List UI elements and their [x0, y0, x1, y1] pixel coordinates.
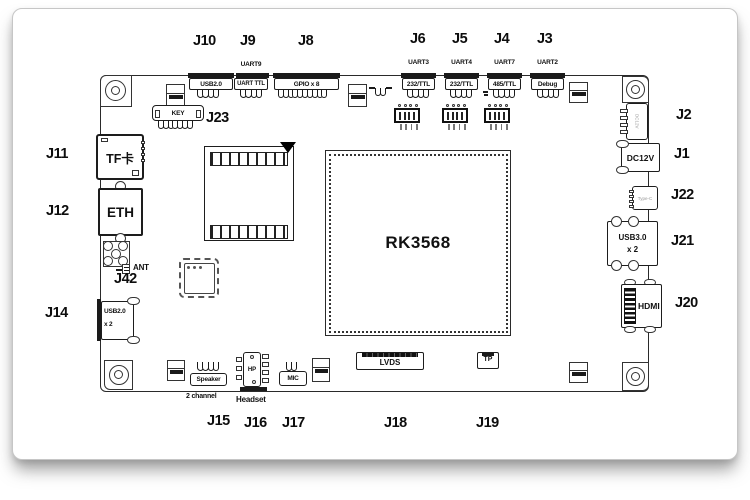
- ref-label-j42: J42: [114, 271, 137, 287]
- ref-label-j9: J9: [240, 33, 255, 49]
- headset-pad: [236, 357, 242, 362]
- edge-pad: [188, 73, 234, 78]
- connector-key-label: KEY: [172, 110, 185, 117]
- connector-debug-label: Debug: [538, 81, 557, 88]
- connector-j2-tiny-label: DC12V: [635, 114, 640, 129]
- pin1-triangle-marker: [280, 142, 296, 153]
- connector-tp: TP: [477, 352, 499, 369]
- connector-uart7-label: 485/TTL: [493, 81, 516, 88]
- edge-pad: [444, 73, 479, 78]
- fuse-component: [166, 84, 185, 107]
- ref-label-j8: J8: [298, 33, 313, 49]
- uart3-pins: [407, 90, 428, 98]
- fuse-component: [167, 360, 185, 381]
- connector-uart4-label: 232/TTL: [450, 81, 473, 88]
- fuse-component: [348, 84, 367, 107]
- usb2x2-pad-bottom: [127, 336, 140, 344]
- connector-uart4-header: 232/TTL: [445, 78, 478, 90]
- ref-label-j23: J23: [206, 110, 229, 126]
- headset-pad: [262, 354, 269, 359]
- connector-gpio-label: GPIO x 8: [294, 81, 320, 88]
- connector-tf-card: TF卡: [96, 134, 144, 180]
- uart7-pins: [493, 90, 514, 98]
- ref-label-j1: J1: [674, 146, 689, 162]
- mini-connector-tail: [386, 87, 392, 89]
- connector-mic: MIC: [279, 371, 307, 386]
- edge-pad: [401, 73, 436, 78]
- connector-typec-tiny-label: Type-C: [638, 196, 653, 201]
- ref-label-j6: J6: [410, 31, 425, 47]
- ref-label-j11: J11: [46, 146, 68, 162]
- dc12v-pad-top: [616, 140, 629, 148]
- port-label-uart7: UART7: [488, 59, 521, 66]
- memory-socket-pins-top: [210, 152, 288, 166]
- usb3-pad: [611, 260, 622, 271]
- ref-label-j21: J21: [671, 233, 694, 249]
- connector-uart3-header: 232/TTL: [402, 78, 435, 90]
- headset-sub-label: Headset: [236, 395, 266, 404]
- connector-headset-label: HP: [248, 367, 256, 373]
- connector-eth: ETH: [98, 188, 143, 236]
- ref-label-j5: J5: [452, 31, 467, 47]
- speaker-sub-label: 2 channel: [186, 393, 217, 400]
- qfn-chip: [179, 258, 219, 298]
- connector-uart3-label: 232/TTL: [407, 81, 430, 88]
- ref-label-j16: J16: [244, 415, 267, 431]
- ref-label-j20: J20: [675, 295, 698, 311]
- connector-gpio-header: GPIO x 8: [274, 78, 339, 90]
- dip-switch-uart7: [484, 104, 512, 130]
- ref-label-j19: J19: [476, 415, 499, 431]
- connector-usb2-label: USB2.0: [200, 81, 222, 88]
- fuse-component: [569, 362, 588, 383]
- port-label-uart2: UART2: [531, 59, 564, 66]
- gpio-pins: [278, 90, 326, 98]
- ref-label-j2: J2: [676, 107, 691, 123]
- ref-label-j15: J15: [207, 413, 230, 429]
- connector-key: KEY: [152, 105, 204, 121]
- uart4-pins: [450, 90, 471, 98]
- hdmi-pad: [624, 326, 636, 333]
- ref-label-j10: J10: [193, 33, 216, 49]
- mounting-hole-bottom-right: [622, 362, 649, 391]
- ref-label-j12: J12: [46, 203, 69, 219]
- mounting-hole-top-left: [100, 75, 132, 107]
- connector-speaker: Speaker: [190, 373, 227, 386]
- mounting-hole-top-right: [622, 76, 649, 103]
- mini-connector-pins: [375, 88, 385, 96]
- edge-pad: [236, 73, 269, 78]
- connector-lvds-label: LVDS: [380, 358, 401, 367]
- connector-mic-label: MIC: [287, 375, 298, 382]
- dip-switch-uart4: [442, 104, 470, 130]
- connector-uart-ttl-label: UART TTL: [237, 81, 265, 87]
- headset-pad: [262, 362, 269, 367]
- headset-edge-bar: [240, 387, 267, 391]
- usb3-pad: [628, 260, 639, 271]
- connector-usb2-header: USB2.0: [189, 78, 233, 90]
- connector-typec: Type-C: [632, 186, 658, 210]
- headset-pad: [236, 375, 242, 380]
- connector-debug-header: Debug: [531, 78, 564, 90]
- rs485-mark: [484, 94, 488, 96]
- ref-label-j4: J4: [494, 31, 509, 47]
- connector-j2: DC12V: [626, 103, 648, 140]
- ref-label-j22: J22: [671, 187, 694, 203]
- mounting-hole-bottom-left: [104, 360, 133, 390]
- connector-usb3-sub: x 2: [627, 245, 638, 254]
- usb3-pad: [628, 216, 639, 227]
- port-label-uart3: UART3: [402, 59, 435, 66]
- ref-label-j18: J18: [384, 415, 407, 431]
- connector-tf-card-label: TF卡: [106, 148, 134, 167]
- speaker-pins: [197, 362, 218, 371]
- fuse-component: [569, 82, 588, 103]
- ref-label-j17: J17: [282, 415, 305, 431]
- connector-speaker-label: Speaker: [197, 376, 221, 383]
- connector-uart7-header: 485/TTL: [488, 78, 521, 90]
- soc-chip: RK3568: [325, 150, 511, 336]
- connector-headset: HP: [243, 352, 261, 387]
- connector-hdmi: HDMI: [621, 284, 662, 328]
- debug-pins: [537, 90, 558, 98]
- connector-usb3-label: USB3.0: [618, 233, 646, 242]
- board-diagram: J10 J9 J8 J6 J5 J4 J3 UART9 UART3 UART4 …: [0, 0, 750, 500]
- connector-usb2x2-sub: x 2: [104, 321, 126, 328]
- connector-usb2x2-label: USB2.0: [104, 308, 126, 315]
- memory-socket-pins-bottom: [210, 225, 288, 239]
- edge-pad: [530, 73, 565, 78]
- headset-pad: [262, 378, 269, 383]
- usb3-pad: [611, 216, 622, 227]
- connector-lvds: LVDS: [356, 352, 424, 370]
- soc-chip-label: RK3568: [385, 233, 450, 253]
- port-label-uart9: UART9: [234, 61, 268, 68]
- mic-pins: [286, 362, 296, 371]
- connector-dc12v-label: DC12V: [627, 153, 654, 163]
- edge-pad: [273, 73, 340, 78]
- usb2x2-pad-top: [127, 297, 140, 305]
- hdmi-pad: [644, 326, 656, 333]
- connector-usb2x2: USB2.0 x 2: [101, 301, 134, 340]
- port-label-uart4: UART4: [445, 59, 478, 66]
- ref-label-j3: J3: [537, 31, 552, 47]
- usb2-pins: [197, 90, 218, 98]
- ref-label-j14: J14: [45, 305, 68, 321]
- rs485-mark: [483, 91, 488, 93]
- headset-pad: [236, 366, 242, 371]
- connector-eth-label: ETH: [107, 205, 134, 220]
- connector-hdmi-label: HDMI: [638, 301, 660, 311]
- edge-pad: [487, 73, 522, 78]
- headset-pad: [262, 370, 269, 375]
- dip-switch-uart3: [394, 104, 422, 130]
- connector-uart-ttl-header: UART TTL: [234, 78, 268, 90]
- uart-ttl-pins: [240, 90, 261, 98]
- connector-tp-label: TP: [484, 356, 493, 363]
- dc12v-pad-bottom: [616, 166, 629, 174]
- key-pins: [158, 121, 192, 129]
- fuse-component: [312, 358, 330, 382]
